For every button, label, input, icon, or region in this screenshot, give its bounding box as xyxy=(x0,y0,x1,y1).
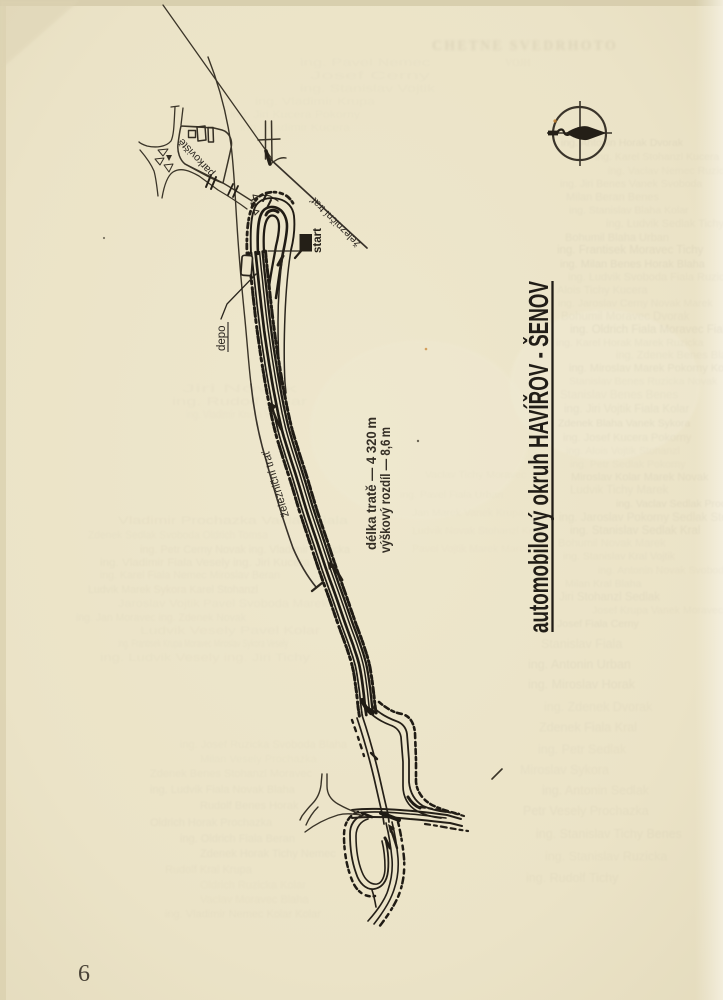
svg-text:ing. Stanislav Blaha Kolar: ing. Stanislav Blaha Kolar xyxy=(569,205,689,217)
svg-text:Zdenek Sedlak Svoboda Oldrich: Zdenek Sedlak Svoboda Oldrich Tomsa xyxy=(88,530,269,542)
svg-text:ing. Vladimir Krupa: ing. Vladimir Krupa xyxy=(255,96,376,108)
svg-text:Jan Marek Vanek Krupa: Jan Marek Vanek Krupa xyxy=(412,507,524,519)
svg-text:výškový rozdíl — 8,6 m: výškový rozdíl — 8,6 m xyxy=(377,427,393,553)
svg-text:Jaroslav Vojtik Pavel Svoboda: Jaroslav Vojtik Pavel Svoboda Marek xyxy=(118,598,329,610)
svg-text:Miroslav Sykora: Miroslav Sykora xyxy=(520,763,609,777)
svg-text:Stanislav Benes Ruzicka Novak: Stanislav Benes Ruzicka Novak xyxy=(569,376,718,388)
svg-text:Ludvik Marek Sykora Karel Stoh: Ludvik Marek Sykora Karel Stohanzl xyxy=(88,584,258,596)
svg-text:ing. Frantisek Krupa Moravec M: ing. Frantisek Krupa Moravec Miroslav Sy… xyxy=(118,638,288,650)
svg-text:Zdenek Horak Tichy Nemec: Zdenek Horak Tichy Nemec xyxy=(200,848,336,860)
svg-text:ing. Miroslav Marek Pokorny Ko: ing. Miroslav Marek Pokorny Kolar xyxy=(569,363,723,375)
svg-text:ing. Ludvik Sedlak Tichy Svobo: ing. Ludvik Sedlak Tichy Svoboda xyxy=(606,218,723,230)
svg-text:ing. Josef Kucera Pokorny: ing. Josef Kucera Pokorny xyxy=(563,432,692,444)
svg-text:ing. Oldrich Fiala Beran: ing. Oldrich Fiala Beran xyxy=(180,833,295,845)
svg-text:Stanislav Fiala: Stanislav Fiala xyxy=(541,637,622,651)
svg-text:Stanislav Benes Benes: Stanislav Benes Benes xyxy=(560,390,679,402)
svg-text:Zdenek Fiala Kral: Zdenek Fiala Kral xyxy=(539,721,637,735)
svg-text:ing. Pavel Nemec: ing. Pavel Nemec xyxy=(300,57,431,69)
svg-text:6: 6 xyxy=(78,961,90,987)
svg-text:ing. Karel Horak Marek Ruzicka: ing. Karel Horak Marek Ruzicka xyxy=(556,337,704,349)
svg-text:Josef Fiala Cerny: Josef Fiala Cerny xyxy=(557,618,639,630)
svg-text:CHETNE SVEDRHOTO: CHETNE SVEDRHOTO xyxy=(432,38,618,54)
svg-text:depo: depo xyxy=(216,325,228,351)
svg-text:ing. Stanislav Ruzicka: ing. Stanislav Ruzicka xyxy=(545,849,667,863)
svg-text:ing. Antonin Sedlak: ing. Antonin Sedlak xyxy=(542,783,650,797)
svg-text:Zdenek Benes Stohanzl Moravec: Zdenek Benes Stohanzl Moravec xyxy=(150,768,313,780)
svg-text:Miroslav Kolar Marek Novak: Miroslav Kolar Marek Novak xyxy=(571,471,709,483)
svg-text:Milan Kral Blaha: Milan Kral Blaha xyxy=(565,578,642,590)
svg-text:ing. Pavel Fiala Urban: ing. Pavel Fiala Urban xyxy=(400,489,503,501)
svg-text:ing. Zdenek Dvorak: ing. Zdenek Dvorak xyxy=(544,700,653,714)
svg-text:ing. Rudolf Tichy: ing. Rudolf Tichy xyxy=(526,871,619,885)
svg-text:Vaclav Moravec Blaha: Vaclav Moravec Blaha xyxy=(200,894,310,906)
svg-text:ing. Milan Benes Horak Blaha: ing. Milan Benes Horak Blaha xyxy=(560,259,706,271)
svg-text:Zdenek Blaha Vanek Sykora: Zdenek Blaha Vanek Sykora xyxy=(558,418,690,430)
svg-text:ing. Jiri Benes Vanek Svoboda: ing. Jiri Benes Vanek Svoboda xyxy=(560,178,702,190)
svg-text:Alois Tichy Kucera: Alois Tichy Kucera xyxy=(557,285,648,297)
svg-text:ing. Jiri Vojtik Fiala Kolar: ing. Jiri Vojtik Fiala Kolar xyxy=(564,404,689,416)
svg-text:Bohumil Blaha Urban: Bohumil Blaha Urban xyxy=(565,232,669,244)
svg-text:ing. Jan Moravec ing. Zdenek N: ing. Jan Moravec ing. Zdenek Novak xyxy=(76,612,246,624)
svg-text:VOJH: VOJH xyxy=(505,58,531,69)
svg-text:Ludvik Novak Stohanzl Kral: Ludvik Novak Stohanzl Kral xyxy=(412,525,540,537)
svg-text:ing. Ludvik Fiala Novak Blaha: ing. Ludvik Fiala Novak Blaha xyxy=(150,784,296,796)
svg-text:Josef Krupa Vanek Moravec: Josef Krupa Vanek Moravec xyxy=(592,604,723,616)
svg-text:ing. Ludvik Svoboda Fiala Ruzi: ing. Ludvik Svoboda Fiala Ruzicka xyxy=(568,271,723,283)
svg-text:ing. Vladimir Nemec Kolar Kola: ing. Vladimir Nemec Kolar Kolar xyxy=(165,909,321,921)
svg-text:Josef Cerny: Josef Cerny xyxy=(310,70,431,82)
svg-text:ing. Josef Ruzicka Svoboda Bla: ing. Josef Ruzicka Svoboda Blaha xyxy=(180,739,348,751)
svg-text:Milan Beran Benes: Milan Beran Benes xyxy=(566,191,659,203)
svg-text:Bohumil Moravec Dvorak: Bohumil Moravec Dvorak xyxy=(561,311,690,323)
svg-text:Petr Vesely Prochazka: Petr Vesely Prochazka xyxy=(523,804,649,818)
svg-text:automobilový okruh HAVÍŘOV -: automobilový okruh HAVÍŘOV - ŠENOV xyxy=(522,281,554,633)
svg-text:Ludvik Vesely Pavel Kolar: Ludvik Vesely Pavel Kolar xyxy=(140,625,320,637)
svg-text:ing. Karel Stohanzl Kucera: ing. Karel Stohanzl Kucera xyxy=(595,151,719,163)
svg-text:ing. Frantisek Moravec Tichy: ing. Frantisek Moravec Tichy xyxy=(557,245,704,257)
svg-text:ing. Stanislav Tichy Benes: ing. Stanislav Tichy Benes xyxy=(536,827,682,841)
svg-text:ing. Antonin Novak Svoboda: ing. Antonin Novak Svoboda xyxy=(598,565,723,577)
svg-text:Rudolf Kral Krupa: Rudolf Kral Krupa xyxy=(165,864,253,876)
svg-text:ing. Petr Sedlak: ing. Petr Sedlak xyxy=(538,742,627,756)
svg-text:Milan Vesely Prochazka: Milan Vesely Prochazka xyxy=(200,754,318,766)
svg-text:ing. Stanislav Vojtik: ing. Stanislav Vojtik xyxy=(300,83,436,95)
svg-text:ing. Alois Vojtik Stohanzl: ing. Alois Vojtik Stohanzl xyxy=(566,445,680,457)
svg-text:ing. Miroslav Horak: ing. Miroslav Horak xyxy=(528,678,636,692)
svg-text:ing. Jaroslav Pokorny Sedlak S: ing. Jaroslav Pokorny Sedlak Stohanzl xyxy=(559,512,723,524)
svg-text:ing. Oldrich Fiala Moravec Fia: ing. Oldrich Fiala Moravec Fiala xyxy=(570,324,723,336)
svg-text:ing. Jiri Kucera Pokorny: ing. Jiri Kucera Pokorny xyxy=(230,109,361,121)
svg-text:start: start xyxy=(312,228,324,253)
svg-text:ing. Ludvik Vesely ing. Jiri T: ing. Ludvik Vesely ing. Jiri Tichy xyxy=(100,652,311,664)
svg-text:Oldrich Ruzicka Kolar: Oldrich Ruzicka Kolar xyxy=(200,879,306,891)
svg-text:ing. Jaroslav Cerny Novak Mare: ing. Jaroslav Cerny Novak Marek xyxy=(558,297,713,309)
svg-text:Ludvik Tichy Marek: Ludvik Tichy Marek xyxy=(570,484,669,496)
svg-text:ing. Vaclav Sedlak Prochazka: ing. Vaclav Sedlak Prochazka xyxy=(616,498,723,510)
svg-text:Vaclav Tichy Moravec: Vaclav Tichy Moravec xyxy=(425,469,526,481)
svg-text:Jiri Stohanzl Sedlak: Jiri Stohanzl Sedlak xyxy=(559,591,660,603)
svg-text:ing. Stanislav Kral Vojtik: ing. Stanislav Kral Vojtik xyxy=(563,551,676,563)
svg-text:ing. Stanislav Sedlak Kral: ing. Stanislav Sedlak Kral xyxy=(570,525,700,537)
svg-text:ing. Karel Fiala Nemec Mirosla: ing. Karel Fiala Nemec Miroslav Beran xyxy=(100,570,280,582)
svg-text:ing. Vladimir Fiala Vesely ing: ing. Vladimir Fiala Vesely ing. Jiri Kuc… xyxy=(100,557,311,569)
svg-text:Bohumil Novak Marek: Bohumil Novak Marek xyxy=(558,538,666,550)
svg-text:Oldrich Horak Prochazka: Oldrich Horak Prochazka xyxy=(150,817,273,829)
svg-text:ing. Vladimir Kucera: ing. Vladimir Kucera xyxy=(240,122,351,134)
svg-text:Pavel Vojtik Marek Marek: Pavel Vojtik Marek Marek xyxy=(412,543,531,555)
svg-text:ing. Antonin Urban: ing. Antonin Urban xyxy=(528,658,631,672)
svg-text:ing. Petr Sedlak Pokorny: ing. Petr Sedlak Pokorny xyxy=(570,459,686,471)
svg-text:ing. Vaclav Nemec Ruzicka: ing. Vaclav Nemec Ruzicka xyxy=(608,165,723,177)
svg-text:ing. Zdenek Benes Blaha: ing. Zdenek Benes Blaha xyxy=(616,350,723,362)
svg-text:Rudolf Benes Horak: Rudolf Benes Horak xyxy=(200,800,299,812)
